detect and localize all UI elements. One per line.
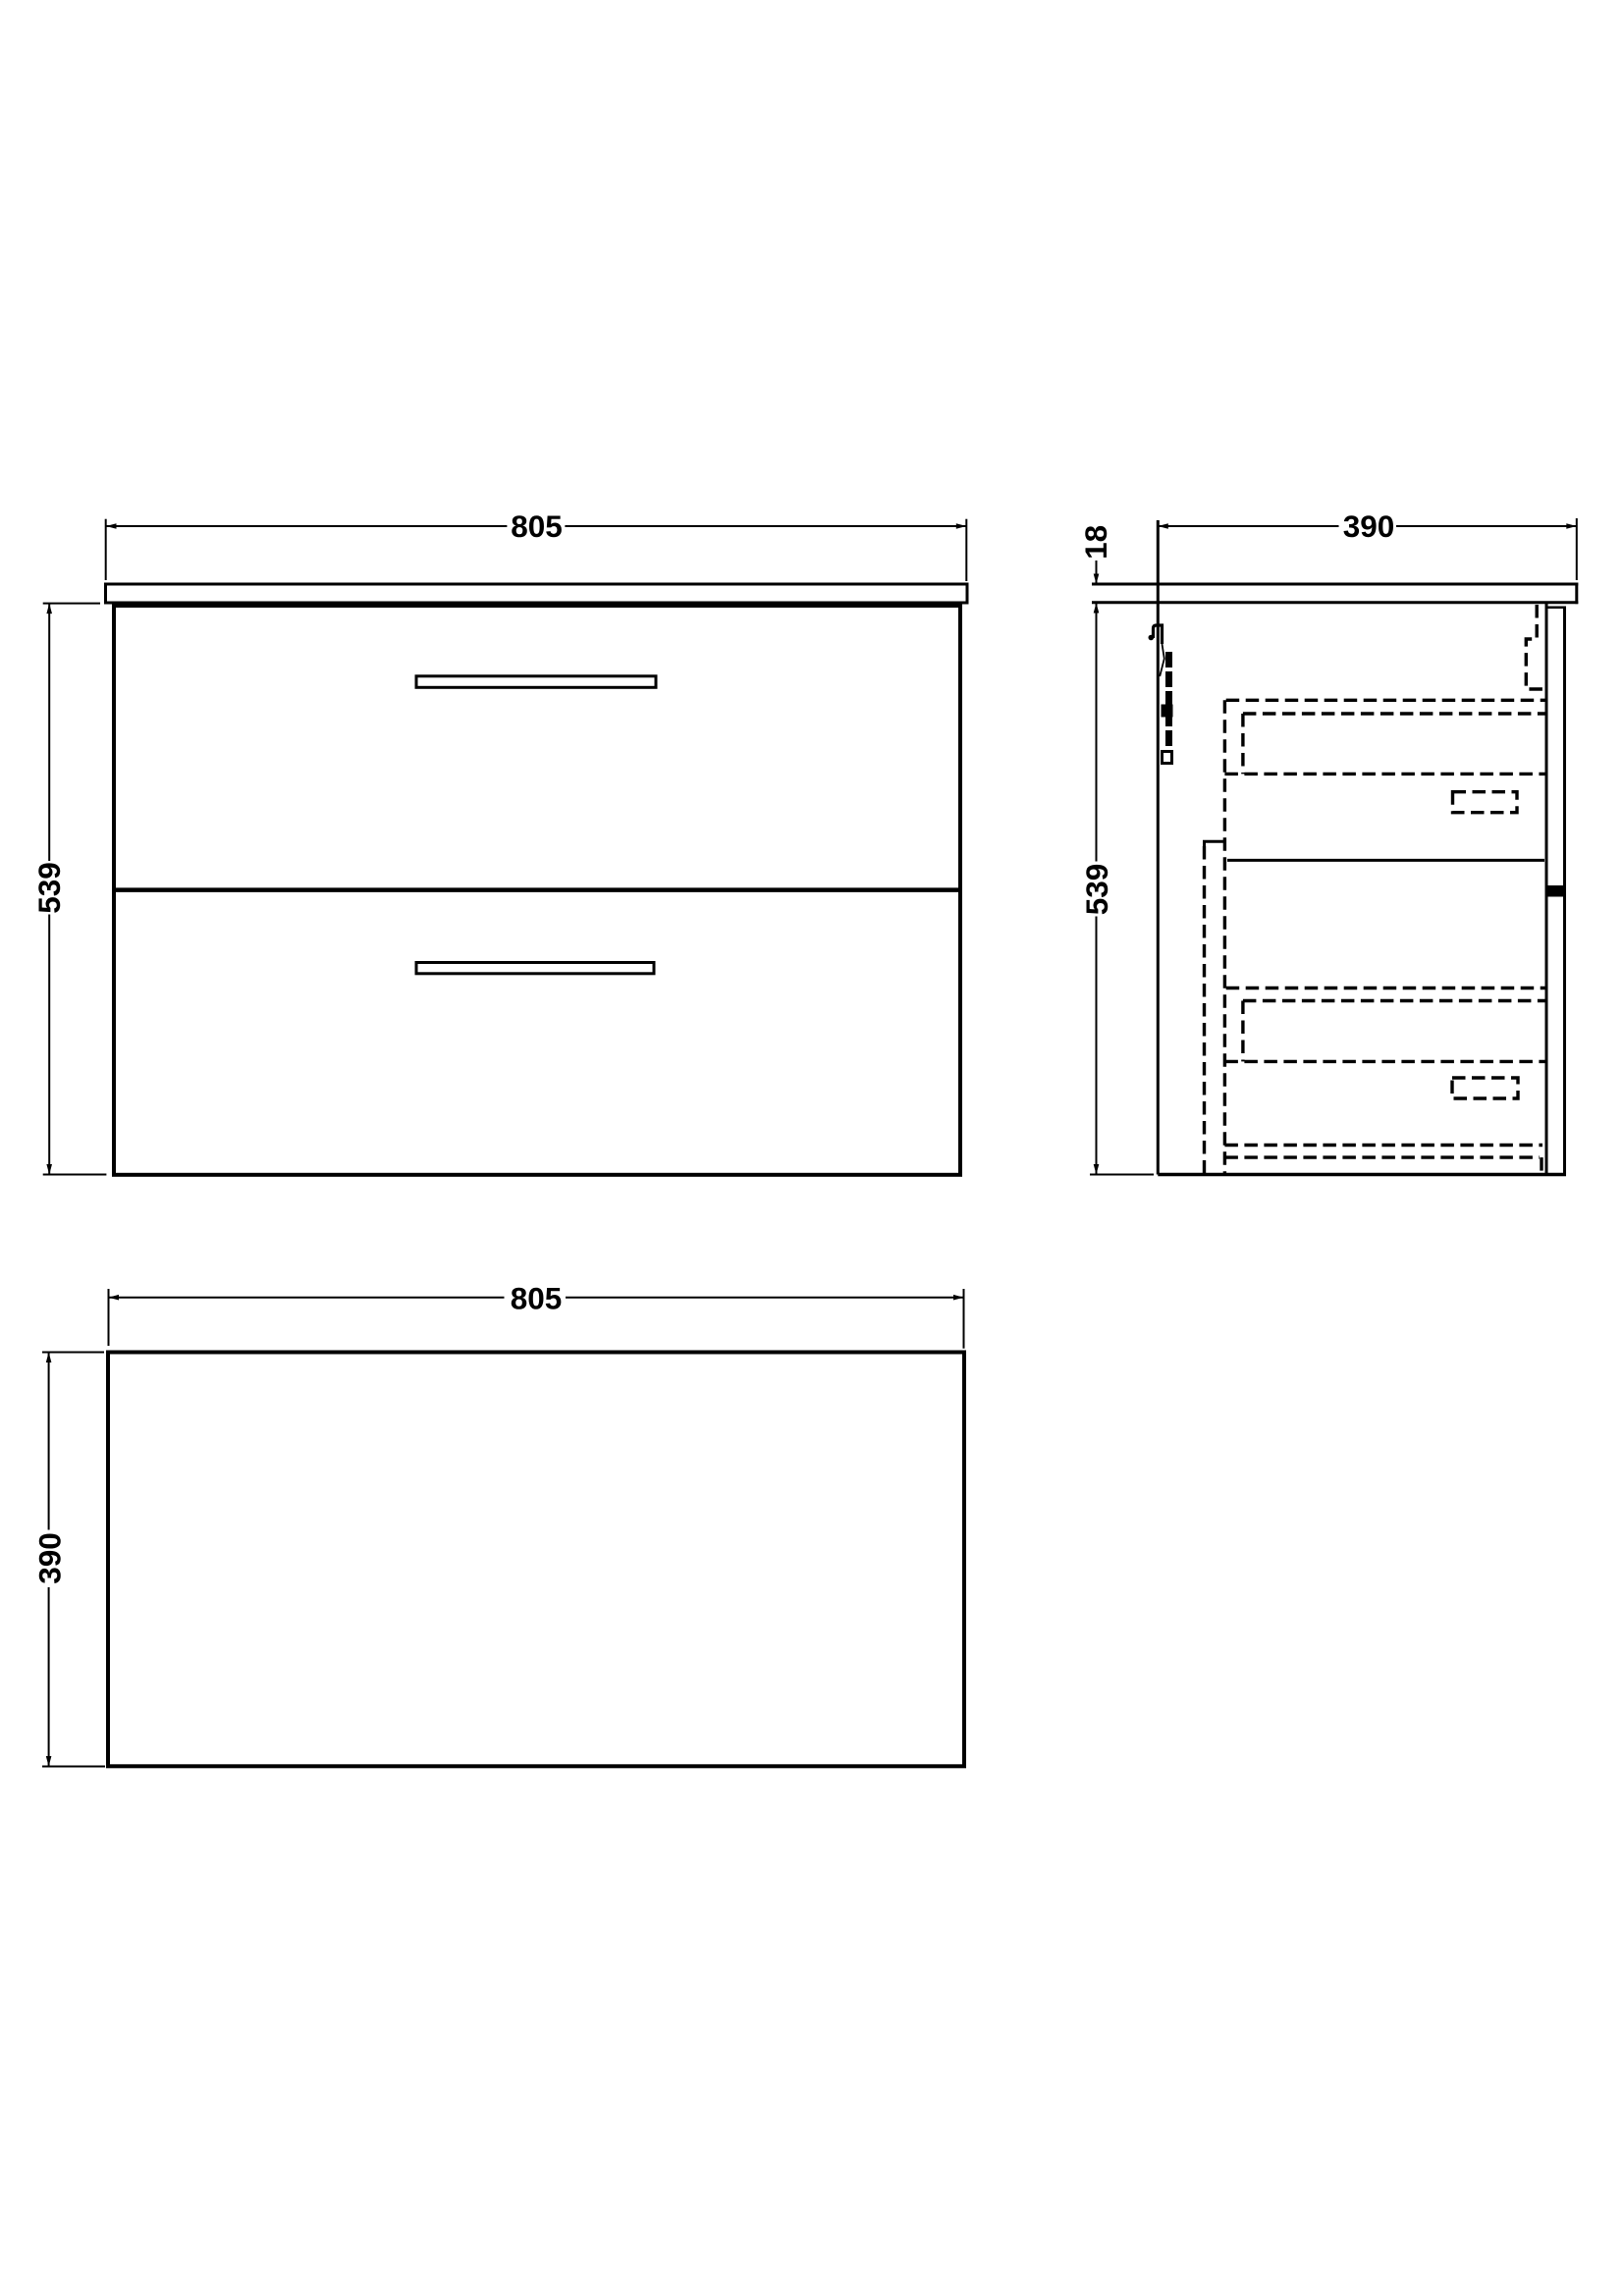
svg-text:390: 390	[32, 1532, 68, 1584]
svg-text:805: 805	[511, 508, 563, 544]
svg-text:539: 539	[31, 862, 67, 914]
svg-text:390: 390	[1343, 508, 1395, 544]
svg-text:805: 805	[511, 1281, 563, 1316]
svg-text:539: 539	[1079, 864, 1114, 916]
svg-text:18: 18	[1078, 525, 1113, 560]
